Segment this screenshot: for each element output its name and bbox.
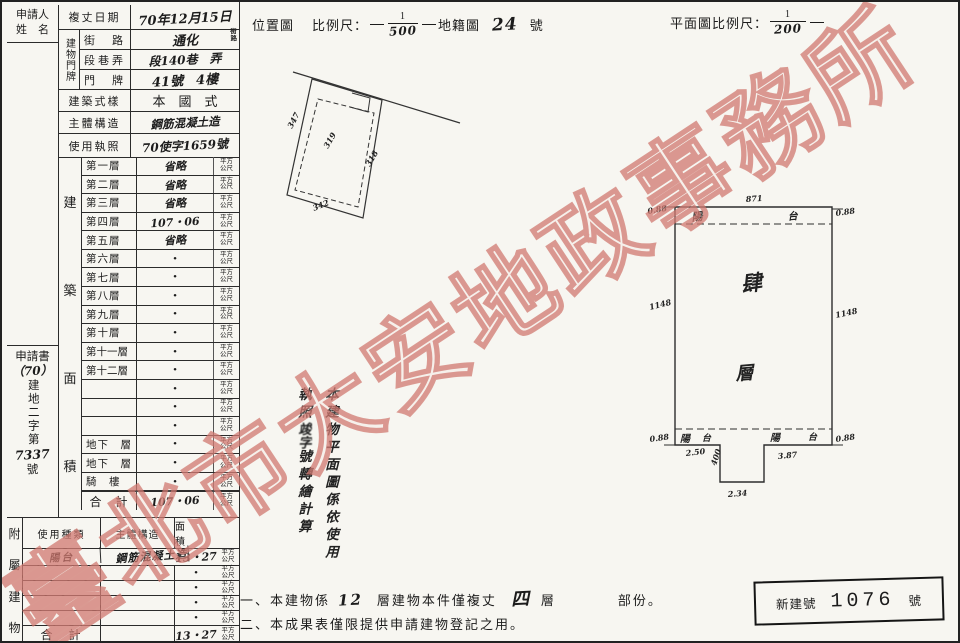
annex-header-row: 使用種類 主體構造 面 積 (23, 518, 239, 549)
license-row: 使用執照 70使字1659號 (59, 134, 239, 157)
stamp-number: 1076 (830, 588, 895, 613)
dim-bottom-left: 0.88 (649, 431, 670, 444)
floors-total-value: 107・06 (137, 490, 214, 512)
parcel-number-right: 318 (363, 148, 380, 168)
dim-bottom-right: 0.88 (835, 431, 856, 444)
annex-row-3: •平方公尺 (23, 581, 239, 596)
dim-protrusion-bottom: 2.34 (726, 488, 748, 499)
survey-date-label: 複丈日期 (59, 5, 131, 29)
floor-row-4: 第四層107・06平方公尺 (82, 213, 239, 232)
dim-side-left: 1148 (648, 297, 672, 312)
note-surveyed-floor: 四 (510, 584, 531, 611)
cadastre-suffix: 號 (530, 15, 544, 34)
vertical-note-col1: 本建物平面圖係依使用 (317, 387, 344, 567)
note-line-1: 一、本建物係 12 層建物本件僅複丈 四 層 部份。 (240, 585, 663, 611)
annex-row-4: •平方公尺 (23, 596, 239, 611)
floor-row-15: •平方公尺 (82, 417, 239, 436)
floor-plan-scale-line: 平面圖比例尺： 1 200 (670, 10, 826, 35)
street-label: 街 路 (80, 30, 131, 49)
header-table: 複丈日期 70年12月15日 建物門牌 街 路 通化 街路 段巷弄 段140巷 (59, 5, 239, 157)
style-value: 本 國 式 (131, 90, 239, 111)
annex-building-table: 附 屬 建 物 使用種類 主體構造 面 積 陽台 鋼筋混凝土造 13・27 平方… (7, 517, 239, 643)
building-survey-form: 臺北市大安地政事務所 申請人 姓 名 申請書 （70） 建地二字第 7337 號… (0, 0, 960, 643)
panel-divider (239, 2, 240, 643)
house-number-label: 門 牌 (80, 70, 131, 89)
parcel-outline (287, 79, 382, 218)
arcade-row: 騎 樓•平方公尺 (82, 473, 239, 492)
structure-label: 主體構造 (59, 112, 131, 133)
basement-row-1: 地下 層•平方公尺 (82, 436, 239, 455)
stamp-suffix: 號 (908, 589, 922, 608)
floor-row-7: 第七層•平方公尺 (82, 268, 239, 287)
dim-strip-left: 2.50 (684, 446, 706, 458)
floor-row-14: •平方公尺 (82, 399, 239, 418)
dim-top-right: 0.88 (835, 205, 856, 218)
floor-row-5: 第五層省略平方公尺 (82, 231, 239, 250)
style-row: 建築式樣 本 國 式 (59, 90, 239, 112)
parcel-number-left: 347 (285, 110, 302, 130)
new-building-number-stamp: 新建號 1076 號 (753, 576, 944, 625)
floor-row-1: 第一層省略平方公尺 (82, 157, 239, 176)
section-lane-label: 段巷弄 (80, 50, 131, 69)
location-scale-fraction: 1 500 (388, 12, 418, 37)
applicant-label-line2: 姓 名 (7, 23, 58, 38)
applicant-name-label: 申請人 姓 名 (7, 5, 58, 43)
location-scale-label: 比例尺： (312, 15, 368, 34)
location-sketch: 347 319 318 342 (268, 57, 473, 237)
floor-area-side-label: 建 築 面 積 (59, 157, 82, 510)
building-outline-dashed (295, 99, 374, 207)
dim-top-left: 0.88 (647, 203, 668, 216)
annex-total-value: 13・27 (175, 625, 218, 643)
stamp-label: 新建號 (776, 592, 817, 612)
vertical-note-col2: 執照竣字號轉繪計算 (290, 387, 317, 567)
note-line-2: 二、本成果表僅限提供申請建物登記之用。 (240, 614, 525, 633)
cadastre-number: 24 (492, 14, 519, 35)
floor-row-6: 第六層•平方公尺 (82, 250, 239, 269)
house-number-row: 門 牌 41號 4樓 (80, 70, 239, 89)
balcony-label-bl2: 台 (702, 433, 712, 444)
dim-strip-right: 3.87 (777, 449, 798, 461)
floor-row-8: 第八層•平方公尺 (82, 287, 239, 306)
floor-row-3: 第三層省略平方公尺 (82, 194, 239, 213)
survey-date-row: 複丈日期 70年12月15日 (59, 5, 239, 30)
floor-plan-drawing: 871 0.88 0.88 1148 1148 0.88 0.88 2.50 3… (640, 192, 870, 507)
parcel-number-center: 319 (321, 130, 338, 150)
doorplate-group-label: 建物門牌 (59, 30, 80, 89)
annex-row-5: •平方公尺 (23, 611, 239, 626)
floor-area-table: 建 築 面 積 第一層省略平方公尺 第二層省略平方公尺 第三層省略平方公尺 第四… (59, 157, 239, 510)
annex-side-label: 附 屬 建 物 (7, 518, 23, 643)
balcony-label-br2: 台 (808, 432, 818, 443)
floor-row-9: 第九層•平方公尺 (82, 306, 239, 325)
floors-total-row: 合 計 107・06 平方公尺 (82, 491, 239, 510)
annex-row-2: •平方公尺 (23, 566, 239, 581)
cadastre-label: 地籍圖 (438, 15, 480, 34)
application-chars: 建地二字第 (25, 379, 39, 447)
location-map-title: 位置圖 (252, 15, 294, 34)
street-unit: 街路 (230, 29, 237, 43)
balcony-label-top-right: 台 (787, 210, 799, 223)
balcony-label-top-left: 陽 (691, 210, 705, 224)
basement-row-2: 地下 層•平方公尺 (82, 454, 239, 473)
applicant-label-line1: 申請人 (7, 8, 58, 23)
applicant-column: 申請人 姓 名 申請書 （70） 建地二字第 7337 號 (7, 5, 59, 517)
floor-row-2: 第二層省略平方公尺 (82, 176, 239, 195)
floor-row-12: 第十二層•平方公尺 (82, 361, 239, 380)
dim-side-right: 1148 (834, 305, 858, 320)
section-lane-row: 段巷弄 段140巷 弄 (80, 50, 239, 70)
vertical-note: 本建物平面圖係依使用 執照竣字號轉繪計算 (290, 387, 344, 567)
balcony-label-br1: 陽 (770, 432, 782, 444)
road-line (293, 72, 460, 123)
doorplate-group: 建物門牌 街 路 通化 街路 段巷弄 段140巷 弄 門 牌 (59, 30, 239, 90)
dim-top: 871 (745, 193, 762, 204)
application-suffix: 號 (27, 463, 39, 477)
application-year: （70） (12, 363, 53, 380)
floor-row-13: •平方公尺 (82, 380, 239, 399)
floor-number-char: 肆 (739, 269, 766, 297)
street-row: 街 路 通化 街路 (80, 30, 239, 50)
application-label: 申請書 (15, 350, 50, 364)
floor-rows: 第一層省略平方公尺 第二層省略平方公尺 第三層省略平方公尺 第四層107・06平… (82, 157, 239, 510)
application-serial: 7337 (15, 446, 51, 463)
structure-row: 主體構造 鋼筋混凝土造 (59, 112, 239, 134)
applicant-name-blank (7, 43, 58, 345)
note-floor-count: 12 (338, 590, 364, 609)
plan-scale-fraction: 1 200 (770, 10, 806, 35)
plan-scale-label: 平面圖比例尺： (670, 13, 768, 32)
balcony-label-bl1: 陽 (680, 433, 692, 445)
style-label: 建築式樣 (59, 90, 131, 111)
location-map-title-line: 位置圖 比例尺： 1 500 地籍圖 24 號 (252, 12, 544, 37)
floor-row-10: 第十層•平方公尺 (82, 324, 239, 343)
annex-total-row: 合 計 13・27 平方公尺 (23, 626, 239, 643)
annex-row-1: 陽台 鋼筋混凝土造 13・27 平方公尺 (23, 549, 239, 566)
license-label: 使用執照 (59, 134, 131, 157)
parcel-number-bottom: 342 (311, 197, 331, 213)
dim-protrusion-side: 400 (708, 447, 723, 466)
application-number-cell: 申請書 （70） 建地二字第 7337 號 (7, 345, 58, 517)
floor-row-11: 第十一層•平方公尺 (82, 343, 239, 362)
note-scribble: 竣字 (296, 422, 311, 449)
floor-word-char: 層 (734, 362, 757, 385)
